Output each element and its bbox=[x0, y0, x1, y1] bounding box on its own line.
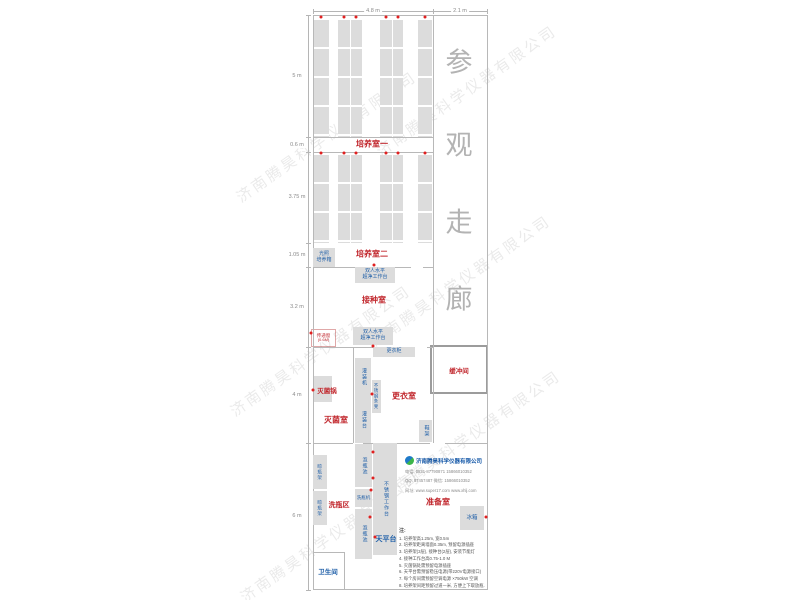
dimension-label: 4.8 m bbox=[364, 8, 382, 14]
tissue-culture-lab-floor-plan: 传递窗 (0.6M) 缓冲间 济南腾昊科学仪器有限公司 电话: 0531-877… bbox=[0, 0, 800, 600]
room-label: 培养室一 bbox=[356, 139, 388, 150]
power-outlet-dot bbox=[320, 152, 323, 155]
power-outlet-dot bbox=[372, 451, 375, 454]
fridge: 冰箱 bbox=[460, 506, 484, 530]
power-outlet-dot bbox=[385, 152, 388, 155]
clean-bench-1: 双人水平 超净工作台 bbox=[355, 267, 395, 283]
room-label: 培养室二 bbox=[356, 249, 388, 260]
equipment-label: 天平台 bbox=[376, 534, 397, 544]
corridor-character: 廊 bbox=[446, 278, 473, 317]
wall-segment bbox=[487, 15, 488, 590]
culture-rack bbox=[418, 20, 432, 137]
power-outlet-dot bbox=[310, 332, 313, 335]
steel-bench: 不锈钢条凳 bbox=[372, 380, 381, 413]
dimension-tick bbox=[306, 267, 311, 268]
power-outlet-dot bbox=[355, 16, 358, 19]
culture-rack bbox=[338, 20, 362, 137]
dimension-tick bbox=[306, 15, 311, 16]
rack-seam bbox=[350, 155, 351, 243]
power-outlet-dot bbox=[424, 152, 427, 155]
shoe-rack: 鞋架 bbox=[419, 420, 432, 442]
power-outlet-dot bbox=[312, 389, 315, 392]
dimension-tick bbox=[487, 9, 488, 14]
wall-segment bbox=[344, 552, 345, 589]
culture-rack bbox=[380, 20, 403, 137]
light-incubator: 光照 培养箱 bbox=[313, 248, 335, 267]
room-label: 灭菌室 bbox=[324, 415, 348, 426]
culture-rack bbox=[418, 155, 432, 243]
dimension-tick bbox=[313, 9, 314, 14]
power-outlet-dot bbox=[343, 16, 346, 19]
dimension-label: 3.2 m bbox=[288, 304, 306, 310]
wall-segment bbox=[313, 15, 488, 16]
bottle-drying-rack-1: 晾瓶架 bbox=[313, 455, 327, 489]
equipment-label: 卫生间 bbox=[318, 566, 338, 576]
power-outlet-dot bbox=[355, 152, 358, 155]
filling-table: 灌装台 bbox=[355, 396, 371, 443]
dimension-label: 3.75 m bbox=[287, 194, 308, 200]
wall-segment bbox=[313, 152, 433, 153]
dimension-label: 2.1 m bbox=[451, 8, 469, 14]
culture-rack bbox=[314, 155, 329, 243]
buffer-room-label: 缓冲间 bbox=[449, 365, 469, 375]
dimension-label: 5 m bbox=[290, 73, 303, 79]
power-outlet-dot bbox=[320, 16, 323, 19]
locker: 更衣柜 bbox=[373, 347, 415, 357]
dimension-tick bbox=[306, 590, 311, 591]
rack-seam bbox=[350, 20, 351, 137]
buffer-room: 缓冲间 bbox=[430, 345, 488, 394]
room-label: 更衣室 bbox=[392, 391, 416, 402]
power-outlet-dot bbox=[372, 477, 375, 480]
dimension-tick bbox=[306, 243, 311, 244]
company-website: 网址: www.super17.com www.xhlj.com bbox=[405, 488, 495, 494]
room-label: 准备室 bbox=[426, 497, 450, 508]
power-outlet-dot bbox=[424, 16, 427, 19]
rack-seam bbox=[392, 20, 393, 137]
bottle-washer: 洗瓶机 bbox=[355, 489, 372, 507]
power-outlet-dot bbox=[385, 16, 388, 19]
corridor-character: 走 bbox=[446, 201, 473, 240]
room-label: 洗瓶区 bbox=[329, 500, 350, 510]
bottle-soak-pool-1: 泡瓶池 bbox=[355, 444, 372, 487]
filling-machine: 灌装机 bbox=[355, 358, 371, 396]
power-outlet-dot bbox=[397, 152, 400, 155]
dimension-tick bbox=[306, 152, 311, 153]
power-outlet-dot bbox=[369, 516, 372, 519]
corridor-character: 参 bbox=[446, 41, 473, 80]
wall-segment bbox=[313, 443, 353, 444]
power-outlet-dot bbox=[397, 16, 400, 19]
clean-bench-2: 双人水平 超净工作台 bbox=[353, 327, 393, 345]
notes-list: 1. 培养架高1.25m, 宽0.5m2. 培养架距离墙面0.35m, 预留电源… bbox=[399, 536, 495, 590]
bottle-drying-rack-2: 晾瓶架 bbox=[313, 491, 327, 525]
notes-block: 注: 1. 培养架高1.25m, 宽0.5m2. 培养架距离墙面0.35m, 预… bbox=[399, 527, 495, 590]
wall-segment bbox=[423, 267, 433, 268]
dimension-label: 6 m bbox=[290, 513, 303, 519]
dimension-line bbox=[308, 15, 309, 590]
wall-segment bbox=[433, 15, 434, 443]
power-outlet-dot bbox=[485, 516, 488, 519]
culture-rack bbox=[338, 155, 362, 243]
dimension-tick bbox=[433, 9, 434, 14]
wall-segment bbox=[353, 347, 354, 443]
dimension-tick bbox=[306, 347, 311, 348]
corridor-character: 观 bbox=[446, 124, 473, 163]
wall-segment bbox=[313, 552, 345, 553]
wall-segment bbox=[445, 443, 488, 444]
room-label: 灭菌锅 bbox=[317, 385, 337, 395]
power-outlet-dot bbox=[373, 264, 376, 267]
culture-rack bbox=[380, 155, 403, 243]
wall-segment bbox=[313, 589, 488, 590]
wall-segment bbox=[427, 347, 433, 348]
dimension-tick bbox=[306, 443, 311, 444]
dimension-label: 0.6 m bbox=[288, 142, 306, 148]
power-outlet-dot bbox=[343, 152, 346, 155]
dimension-label: 4 m bbox=[290, 392, 303, 398]
rack-seam bbox=[392, 155, 393, 243]
room-label: 接种室 bbox=[362, 295, 386, 306]
dimension-label: 1.05 m bbox=[287, 252, 308, 258]
dimension-tick bbox=[306, 137, 311, 138]
note-item: 4. 接种工作台高0.75-1.0 M bbox=[399, 556, 495, 563]
power-outlet-dot bbox=[370, 489, 373, 492]
power-outlet-dot bbox=[374, 536, 377, 539]
note-item: 3. 培养架(3层), 接种台(2层), 安装节能灯 bbox=[399, 549, 495, 556]
power-outlet-dot bbox=[372, 345, 375, 348]
culture-rack bbox=[314, 20, 329, 137]
power-outlet-dot bbox=[371, 393, 374, 396]
